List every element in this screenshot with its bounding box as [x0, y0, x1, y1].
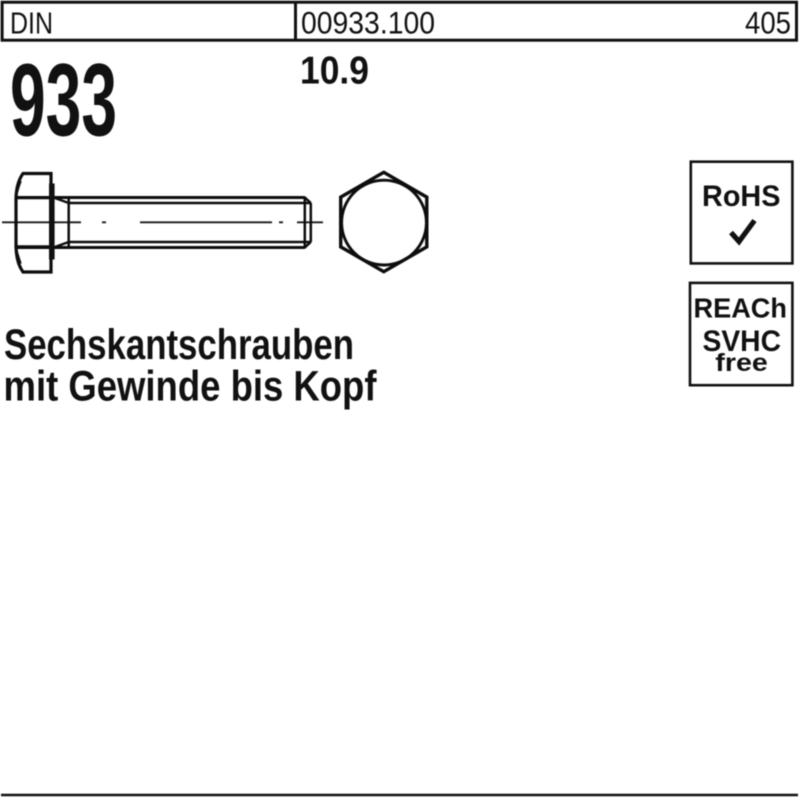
svg-text:REACh: REACh: [694, 292, 788, 323]
svg-text:Sechskantschrauben: Sechskantschrauben: [4, 322, 354, 369]
svg-text:mit Gewinde bis Kopf: mit Gewinde bis Kopf: [4, 364, 378, 411]
svg-text:free: free: [715, 349, 768, 377]
svg-text:405: 405: [745, 5, 791, 41]
svg-text:00933.100: 00933.100: [301, 5, 435, 41]
svg-text:RoHS: RoHS: [702, 180, 781, 213]
svg-text:DIN: DIN: [10, 6, 53, 41]
svg-text:10.9: 10.9: [300, 50, 369, 93]
svg-text:933: 933: [10, 43, 117, 158]
